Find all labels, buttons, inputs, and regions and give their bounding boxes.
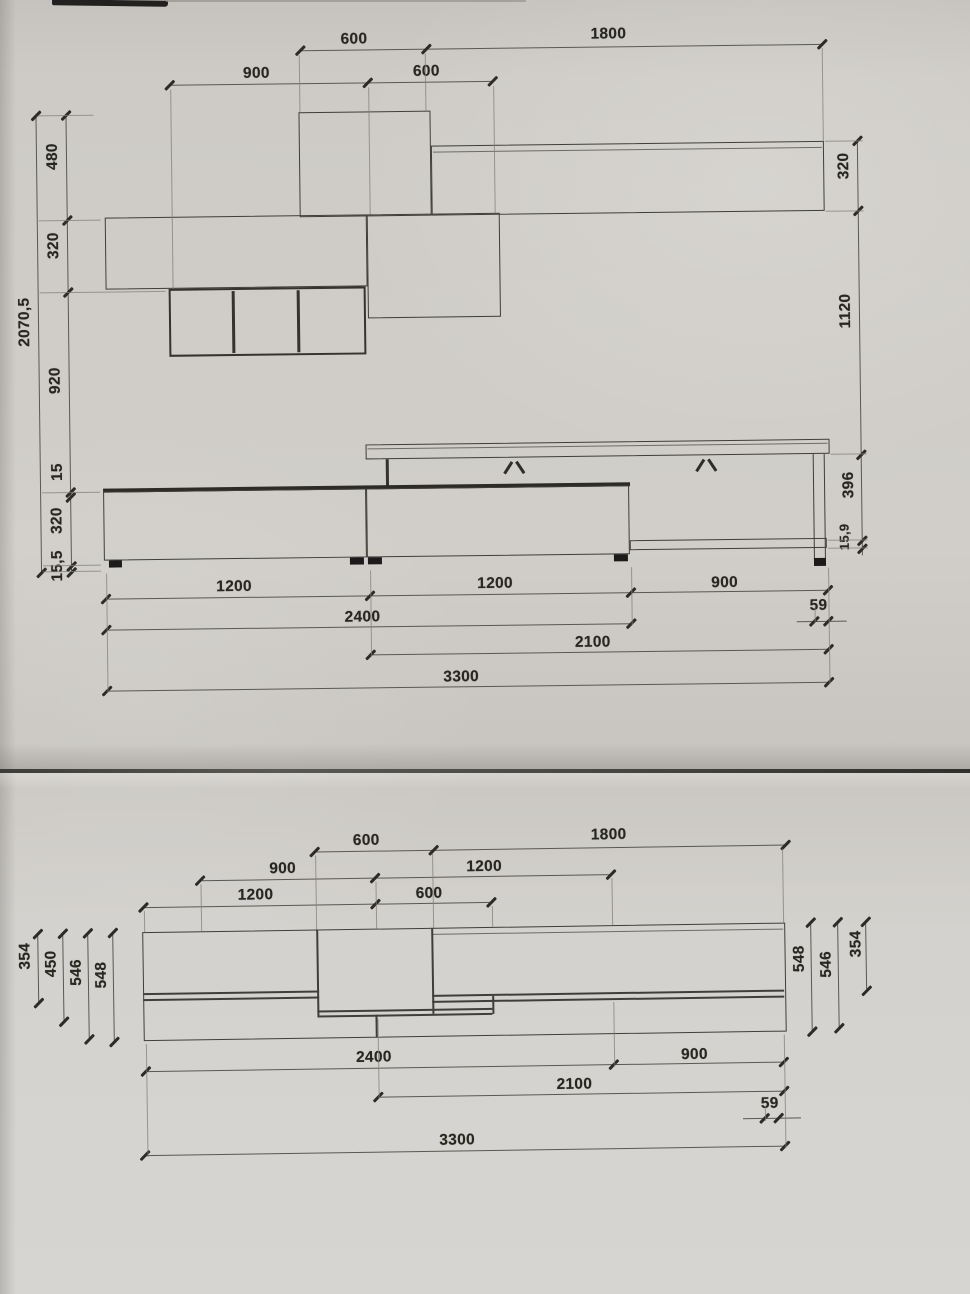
dim-label: 548 [790,945,808,972]
dim-label: 354 [16,943,34,970]
dim-line [837,922,840,1028]
dim-line [200,874,611,881]
dim-label: 600 [353,832,380,850]
extension-line [784,1035,787,1148]
dim-line [315,845,786,853]
extension-line [492,906,493,927]
dim-label: 1200 [466,858,502,877]
dim-label: 546 [818,951,836,978]
dim-label: 900 [269,860,296,878]
dim-label: 548 [93,962,111,989]
dim-line [37,934,39,1003]
scanned-drawing-page: 600 1800 900 600 2070,5 480 320 920 15 3… [0,0,970,1294]
dim-line [112,933,115,1042]
extension-line [144,911,145,932]
dim-line [62,933,65,1021]
dim-label: 900 [681,1046,708,1064]
extension-line [375,882,377,929]
dim-line-59 [743,1117,801,1119]
extension-line [782,849,784,923]
dim-label: 1200 [238,886,274,905]
dim-label: 1800 [591,826,627,845]
dim-line [810,922,813,1031]
dim-line [87,933,90,1039]
dim-line [144,902,492,909]
plan-step-side [492,996,494,1014]
dim-label: 450 [42,950,60,977]
extension-line [611,878,613,925]
extension-line [315,856,317,930]
extension-line [146,1044,149,1157]
extension-line [765,1106,766,1121]
dim-label: 600 [416,885,443,903]
extension-line [200,884,202,931]
dim-label: 354 [847,930,865,957]
dim-label: 2100 [556,1075,592,1094]
plan-outline [142,923,787,1042]
dim-label: 2400 [356,1048,392,1067]
dim-label: 59 [761,1095,779,1113]
plan-drawing: 600 1800 900 1200 1200 600 354 450 [0,0,970,1294]
dim-label: 3300 [439,1131,475,1150]
dim-label: 546 [68,959,86,986]
